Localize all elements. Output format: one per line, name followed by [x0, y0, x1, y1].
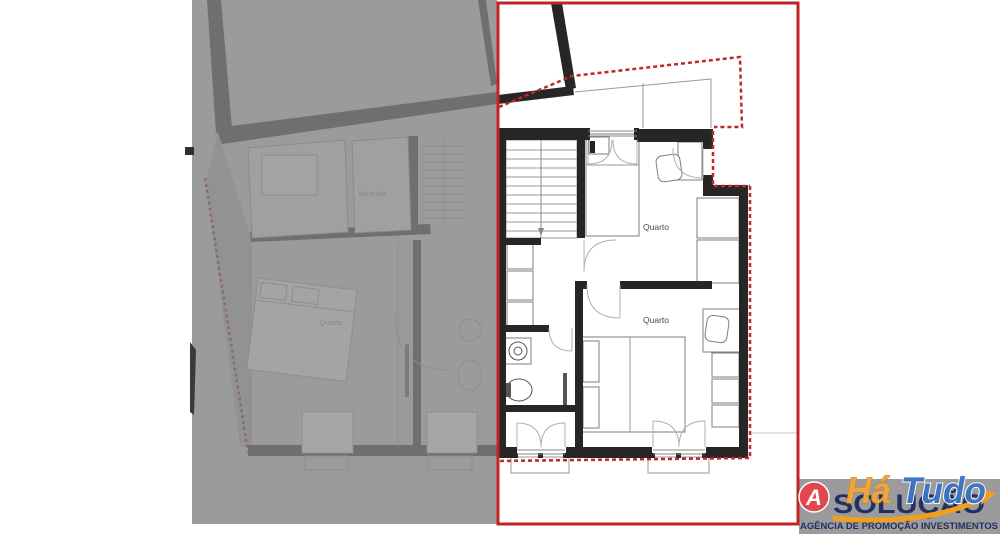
watermark-ha: Há	[846, 470, 891, 511]
faded-bed	[247, 278, 357, 382]
wall-tick	[185, 147, 194, 155]
staircase	[506, 140, 577, 238]
balcony-1	[511, 457, 569, 473]
faded-quarto-label: Quarto	[320, 318, 343, 327]
faded-plan: Varanda Quarto	[185, 0, 497, 524]
room1-label: Quarto	[643, 222, 669, 232]
watermark-tudo: Tudo	[901, 470, 986, 511]
wardrobe-1	[697, 198, 739, 283]
hall-closet	[507, 241, 533, 330]
towel-rail	[563, 373, 567, 406]
logo-tagline: AGÊNCIA DE PROMOÇÃO INVESTIMENTOS	[800, 520, 998, 532]
watermark-hatudo: Há Tudo	[846, 470, 986, 511]
room2-label: Quarto	[643, 315, 669, 325]
logo-monogram: A	[805, 485, 822, 510]
wardrobe-2	[712, 353, 739, 427]
active-plan: Quarto Quarto	[498, 3, 798, 524]
faded-furniture	[262, 155, 317, 195]
bed-2	[579, 337, 685, 432]
bed-1	[586, 134, 639, 236]
desk-2	[703, 309, 741, 352]
highlight-panel	[498, 3, 798, 524]
listing-floorplan: Varanda Quarto	[0, 0, 1000, 534]
varanda-label: Varanda	[358, 189, 387, 198]
